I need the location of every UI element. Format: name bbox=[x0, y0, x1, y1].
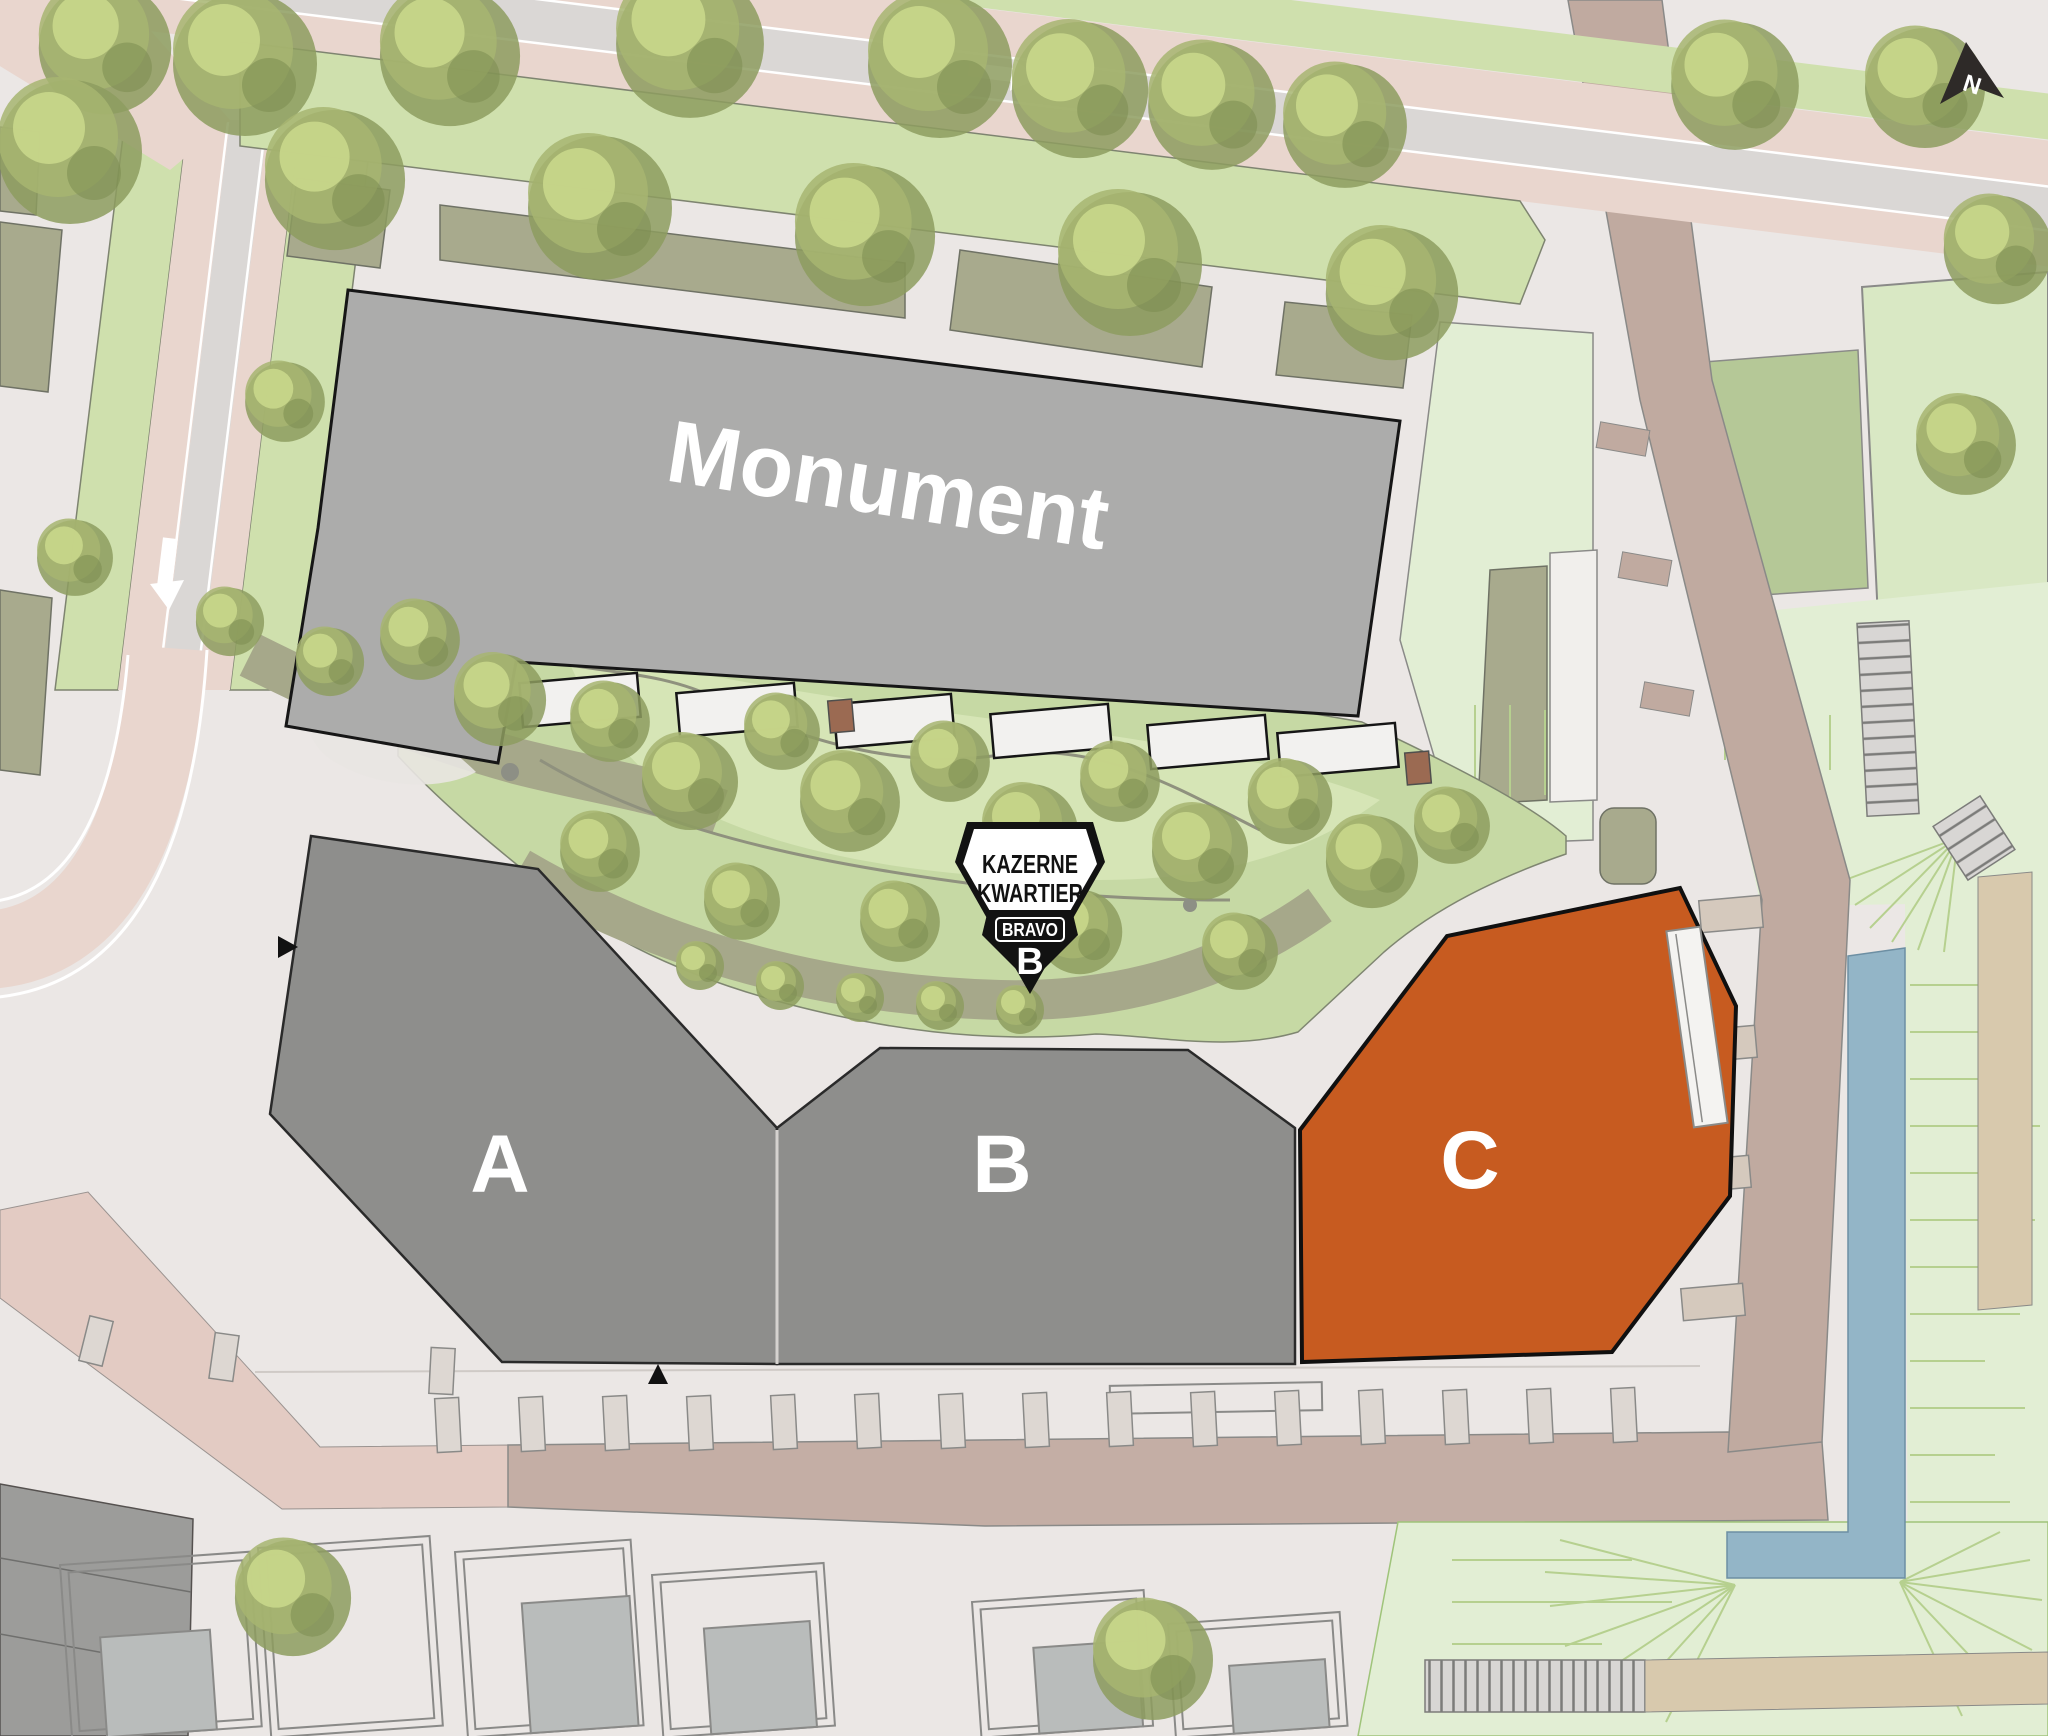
bollard bbox=[1611, 1387, 1638, 1442]
bollard bbox=[855, 1393, 882, 1448]
site-plan-page: Monument A B C bbox=[0, 0, 2048, 1736]
paved-strip bbox=[1550, 550, 1597, 802]
footpath bbox=[1645, 1652, 2048, 1712]
block-b[interactable] bbox=[777, 1048, 1295, 1364]
logo-monogram: B bbox=[1016, 941, 1043, 983]
logo-text-kwartier: KWARTIER bbox=[977, 878, 1083, 908]
block-a-label: A bbox=[470, 1119, 529, 1210]
bollard bbox=[771, 1394, 798, 1449]
bollard bbox=[1191, 1391, 1218, 1446]
garden-furniture bbox=[1183, 898, 1197, 912]
footpath bbox=[1978, 872, 2032, 1310]
bollard bbox=[435, 1397, 462, 1452]
bollard bbox=[939, 1393, 966, 1448]
bollard bbox=[1023, 1392, 1050, 1447]
logo-text-bravo: BRAVO bbox=[1002, 920, 1058, 940]
bollard bbox=[1443, 1389, 1470, 1444]
bollard bbox=[687, 1395, 714, 1450]
terrace bbox=[1147, 715, 1268, 769]
garden-furniture bbox=[501, 763, 519, 781]
parking-bay bbox=[1681, 1283, 1746, 1320]
bollard bbox=[429, 1347, 455, 1394]
bollard bbox=[1359, 1389, 1386, 1444]
stairs bbox=[1857, 621, 1919, 816]
planter-box bbox=[1405, 751, 1432, 785]
planting-bed bbox=[1478, 566, 1547, 804]
block-b-label: B bbox=[972, 1119, 1031, 1210]
tree bbox=[868, 0, 1012, 138]
bollard bbox=[603, 1395, 630, 1450]
bollard bbox=[1107, 1391, 1134, 1446]
block-c-label: C bbox=[1440, 1115, 1499, 1206]
tree bbox=[1944, 194, 2048, 305]
bollard bbox=[519, 1396, 546, 1451]
bollard bbox=[1527, 1388, 1554, 1443]
planting-bed bbox=[1600, 808, 1656, 884]
logo-text-kazerne: KAZERNE bbox=[982, 849, 1078, 879]
parking-bay bbox=[1699, 895, 1764, 932]
site-plan-map: Monument A B C bbox=[0, 0, 2048, 1736]
stairs bbox=[1425, 1660, 1645, 1712]
bollard bbox=[1275, 1390, 1302, 1445]
planter-box bbox=[828, 699, 855, 733]
